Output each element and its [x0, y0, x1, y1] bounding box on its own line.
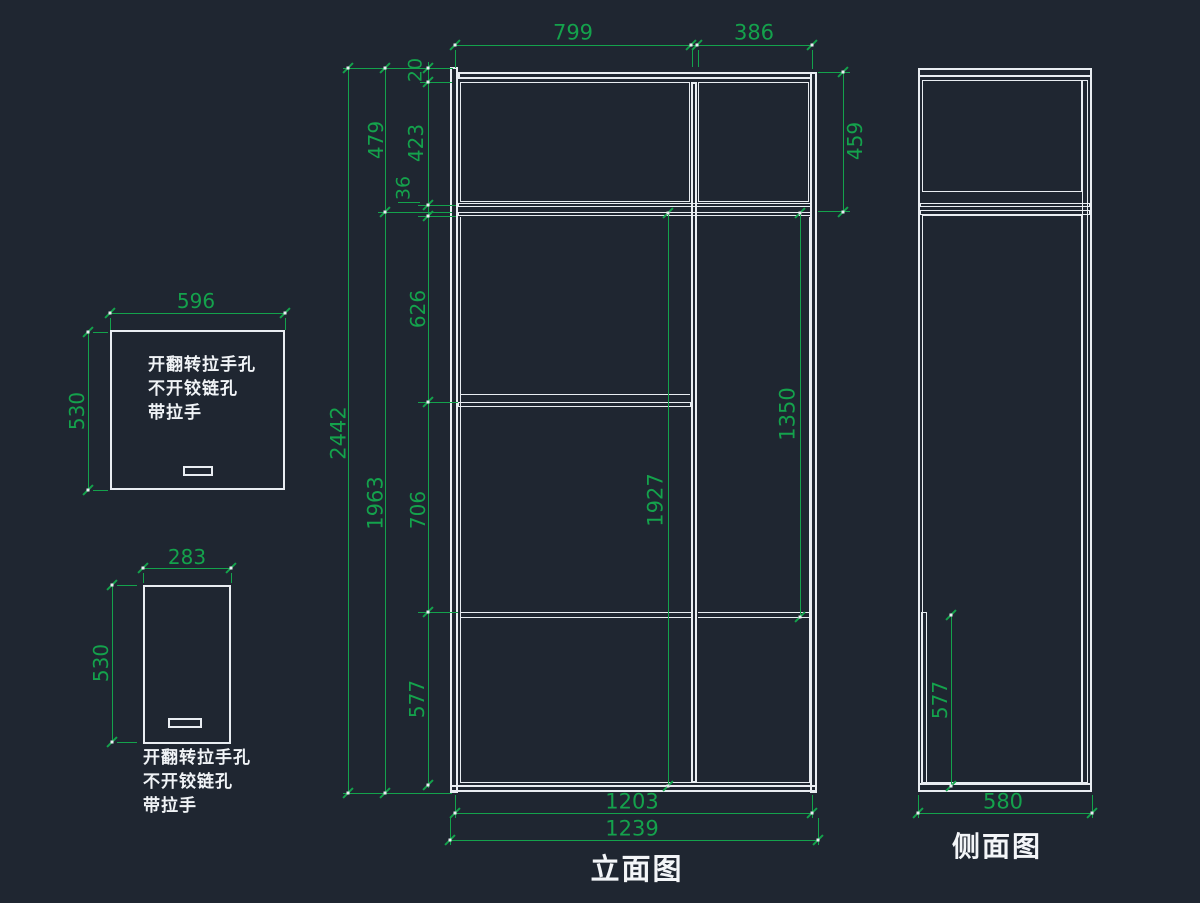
dim-tick-dot — [347, 67, 350, 70]
dim-extension-line — [1092, 795, 1093, 818]
dim-tick-dot — [950, 614, 953, 617]
dim-tick-dot — [811, 812, 814, 815]
dim-tick-dot — [917, 812, 920, 815]
dim-label-front-panel: 577 — [930, 681, 950, 719]
dim-extension-line — [385, 68, 386, 793]
dim-tick-dot — [696, 44, 699, 47]
dim-line — [818, 72, 850, 73]
dim-tick-dot — [427, 215, 430, 218]
dim-line — [93, 332, 108, 333]
elevation-upper-right-compartment — [698, 82, 809, 202]
dim-tick-dot — [454, 44, 457, 47]
dim-tick-dot — [347, 792, 350, 795]
dim-extension-line — [455, 795, 456, 818]
side-upper-compartment — [922, 80, 1082, 192]
dim-label-bottom-inner: 1203 — [605, 792, 658, 813]
dim-extension-line — [800, 213, 801, 617]
dim-tick-dot — [667, 785, 670, 788]
dim-line — [117, 585, 137, 586]
dim-label-h2: 626 — [408, 290, 428, 328]
dim-label-top-w2: 386 — [734, 23, 774, 44]
dim-tick-dot — [230, 567, 233, 570]
elevation-lower-bottom-inner-edge — [460, 782, 809, 783]
dim-extension-line — [692, 50, 693, 67]
dim-line — [343, 68, 453, 69]
dim-extension-line — [428, 62, 429, 788]
dim-tick-dot — [427, 204, 430, 207]
dim-line — [110, 313, 285, 314]
dim-tick-dot — [842, 211, 845, 214]
side-right-wall — [1090, 77, 1092, 785]
cad-drawing-canvas: 7993862442479196320423366267065774591927… — [0, 0, 1200, 903]
side-front-panel-strip — [921, 612, 927, 784]
elevation-center-divider — [691, 82, 697, 783]
dim-tick-dot — [109, 312, 112, 315]
dim-label-thk: 20 — [407, 58, 426, 82]
dim-label-inner-left: 1927 — [646, 473, 667, 526]
side-shelf-band-1 — [920, 203, 1090, 207]
dim-label-width: 283 — [168, 547, 206, 567]
elevation-shelf-line-left-2 — [460, 617, 691, 618]
dim-line — [398, 202, 420, 203]
dim-tick-dot — [842, 71, 845, 74]
dim-tick-dot — [799, 616, 802, 619]
elevation-shelf-line-right — [698, 612, 809, 613]
elevation-shelf-line-left — [460, 612, 691, 613]
dim-extension-line — [812, 50, 813, 69]
dim-line — [418, 216, 456, 217]
dim-label-inner-right: 1350 — [778, 387, 799, 440]
dim-line — [343, 793, 452, 794]
elevation-upper-left-compartment — [460, 82, 690, 202]
dim-tick-dot — [111, 741, 114, 744]
side-view-title: 侧面图 — [952, 825, 1042, 865]
dim-tick-dot — [427, 784, 430, 787]
dim-label-height: 530 — [91, 644, 111, 682]
elevation-top-shelf-band-2 — [458, 212, 811, 216]
dim-line — [378, 212, 452, 213]
dim-tick-dot — [384, 211, 387, 214]
door-small-note-line-1: 开翻转拉手孔 — [143, 750, 251, 767]
dim-tick-dot — [950, 785, 953, 788]
door-small-note-line-2: 不开铰链孔 — [143, 774, 233, 791]
dim-tick-dot — [449, 839, 452, 842]
dim-extension-line — [455, 50, 456, 68]
dim-extension-line — [918, 795, 919, 818]
dim-label-width: 596 — [177, 291, 215, 311]
door-small-note-line-3: 带拉手 — [143, 798, 197, 815]
side-top-panel — [918, 68, 1092, 77]
door-small-handle — [168, 718, 202, 728]
dim-tick-dot — [87, 489, 90, 492]
dim-label-width: 580 — [983, 792, 1023, 813]
side-back-panel-strip — [1082, 80, 1088, 783]
dim-extension-line — [285, 318, 286, 330]
dim-tick-dot — [284, 312, 287, 315]
dim-tick-dot — [427, 67, 430, 70]
dim-tick-dot — [799, 212, 802, 215]
dim-tick-dot — [384, 67, 387, 70]
dim-tick-dot — [87, 331, 90, 334]
door-large-handle — [183, 466, 213, 476]
door-large-note-line-1: 开翻转拉手孔 — [148, 357, 256, 374]
dim-tick-dot — [811, 44, 814, 47]
door-large-note-line-3: 带拉手 — [148, 405, 202, 422]
dim-tick-dot — [1091, 812, 1094, 815]
dim-line — [455, 45, 812, 46]
dim-label-h3: 706 — [408, 491, 428, 529]
dim-label-height: 530 — [67, 392, 87, 430]
elevation-lower-right-inner-edge — [809, 217, 810, 783]
dim-label-right-upper: 459 — [845, 122, 865, 160]
dim-tick-dot — [427, 611, 430, 614]
dim-extension-line — [231, 573, 232, 583]
door-large-note-line-2: 不开铰链孔 — [148, 381, 238, 398]
dim-tick-dot — [690, 44, 693, 47]
elevation-shelf-line-right-2 — [698, 617, 809, 618]
elevation-right-side-panel — [810, 72, 817, 793]
elevation-left-shelf-band — [458, 402, 691, 407]
elevation-lower-left-inner-edge — [460, 217, 461, 783]
dim-line — [418, 205, 456, 206]
dim-tick-dot — [427, 81, 430, 84]
dim-tick-dot — [817, 839, 820, 842]
dim-extension-line — [668, 213, 669, 786]
dim-label-left-total: 2442 — [329, 406, 350, 459]
dim-line — [117, 742, 137, 743]
dim-label-bottom-outer: 1239 — [605, 819, 658, 840]
dim-label-h1: 423 — [406, 124, 426, 162]
elevation-top-panel — [458, 72, 812, 79]
elevation-top-shelf-band-1 — [458, 203, 811, 207]
dim-tick-dot — [427, 401, 430, 404]
dim-label-h4: 577 — [407, 680, 427, 718]
dim-extension-line — [110, 318, 111, 330]
dim-line — [93, 490, 108, 491]
dim-label-gap: 36 — [395, 176, 414, 200]
elevation-view-title: 立面图 — [590, 846, 683, 888]
dim-extension-line — [698, 50, 699, 67]
dim-tick-dot — [384, 792, 387, 795]
dim-label-top-w1: 799 — [553, 23, 593, 44]
dim-extension-line — [812, 795, 813, 818]
dim-tick-dot — [454, 812, 457, 815]
dim-tick-dot — [111, 584, 114, 587]
elevation-left-side-panel — [450, 67, 458, 793]
dim-label-left-upper: 479 — [366, 121, 386, 159]
dim-tick-dot — [667, 212, 670, 215]
dim-label-left-lower: 1963 — [366, 476, 387, 529]
side-left-wall — [918, 77, 920, 785]
dim-extension-line — [143, 573, 144, 583]
elevation-left-shelf-front-line — [460, 394, 690, 395]
dim-tick-dot — [142, 567, 145, 570]
